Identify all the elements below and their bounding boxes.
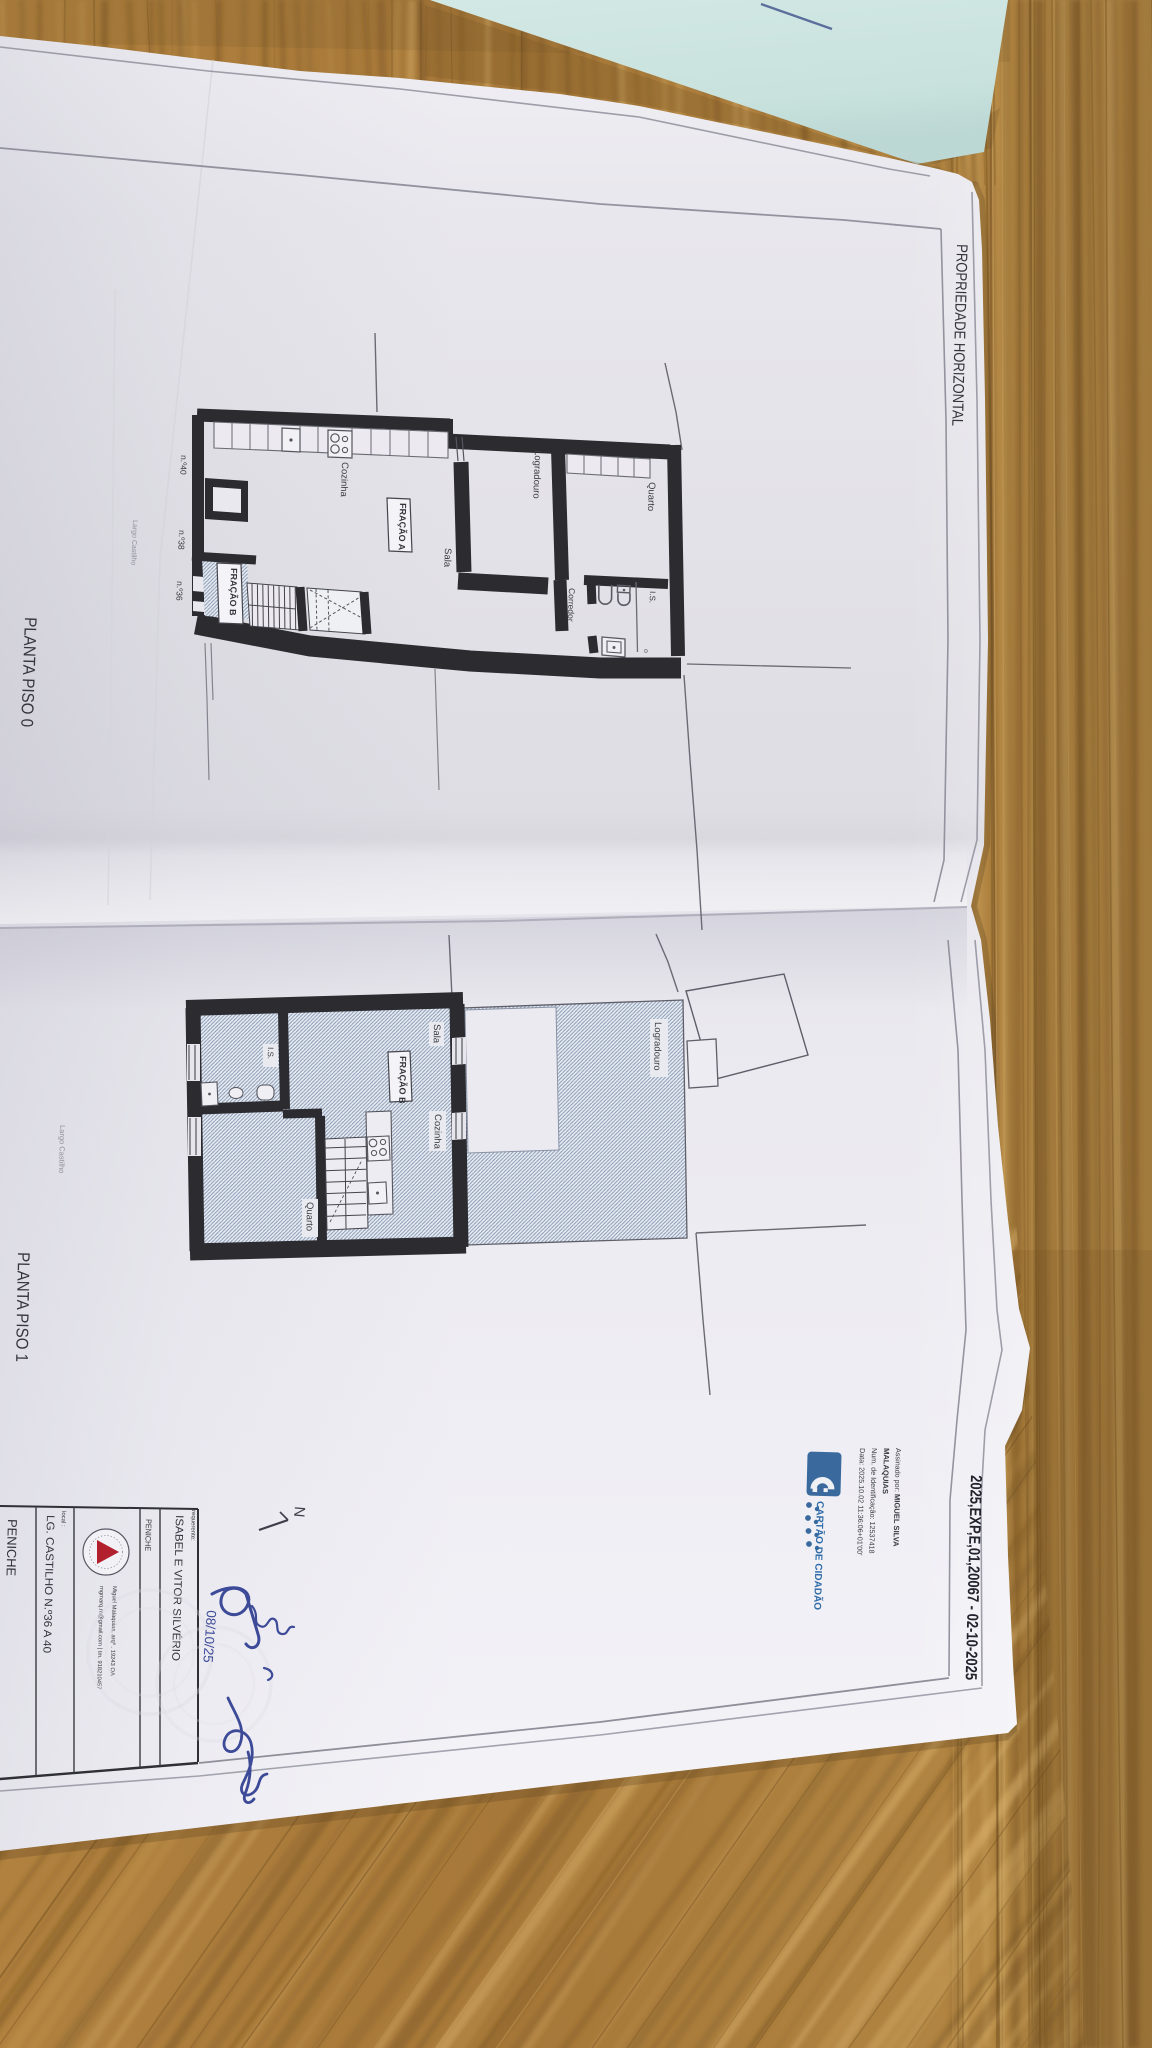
svg-text:Quarto: Quarto [645, 482, 657, 511]
svg-text:requerente:: requerente: [189, 1510, 196, 1541]
svg-text:FRAÇÃO B: FRAÇÃO B [397, 1056, 408, 1104]
svg-text:PENICHE: PENICHE [143, 1519, 153, 1551]
svg-text:Corredor: Corredor [566, 588, 577, 622]
svg-text:Cozinha: Cozinha [431, 1114, 443, 1150]
svg-text:FRAÇÃO B: FRAÇÃO B [228, 568, 239, 616]
svg-text:I.S.: I.S. [266, 1047, 275, 1059]
svg-text:Largo Castilho: Largo Castilho [57, 1125, 67, 1174]
svg-text:Sala: Sala [431, 1024, 442, 1044]
svg-text:Logradouro: Logradouro [530, 450, 543, 499]
svg-text:PLANTA PISO 0: PLANTA PISO 0 [17, 617, 40, 728]
svg-text:Sala: Sala [441, 548, 453, 568]
svg-text:Logradouro: Logradouro [651, 1022, 663, 1071]
svg-text:PENICHE: PENICHE [4, 1519, 20, 1577]
svg-text:I.S.: I.S. [648, 591, 657, 603]
svg-text:PLANTA PISO 1: PLANTA PISO 1 [12, 1252, 33, 1362]
svg-text:o: o [642, 649, 649, 653]
svg-text:Cozinha: Cozinha [338, 462, 350, 498]
svg-text:n.º40: n.º40 [178, 455, 189, 475]
svg-text:n.º38: n.º38 [176, 530, 187, 550]
svg-text:local :: local : [60, 1511, 66, 1527]
svg-text:n.º36: n.º36 [174, 581, 185, 601]
svg-text:Quarto: Quarto [303, 1202, 315, 1231]
svg-text:FRAÇÃO A: FRAÇÃO A [397, 503, 408, 551]
svg-text:N: N [290, 1506, 308, 1518]
svg-text:MALAQUIAS: MALAQUIAS [881, 1448, 891, 1494]
